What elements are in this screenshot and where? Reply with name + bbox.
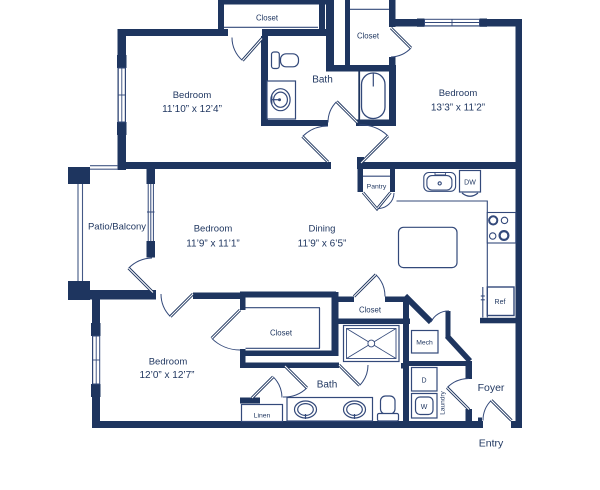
svg-text:Foyer: Foyer <box>478 382 505 394</box>
svg-text:W: W <box>421 404 428 411</box>
svg-text:Closet: Closet <box>359 306 382 315</box>
svg-text:11’9” x 6’5”: 11’9” x 6’5” <box>298 239 347 250</box>
svg-text:Patio/Balcony: Patio/Balcony <box>88 222 146 233</box>
svg-text:Bath: Bath <box>317 380 338 391</box>
svg-text:Ref: Ref <box>495 299 506 306</box>
svg-text:12’0” x 12’7”: 12’0” x 12’7” <box>139 370 194 381</box>
svg-text:Bedroom: Bedroom <box>149 357 188 368</box>
svg-text:Bedroom: Bedroom <box>439 88 478 99</box>
svg-text:Bedroom: Bedroom <box>173 90 212 101</box>
svg-text:11’9” x 11’1”: 11’9” x 11’1” <box>186 239 240 250</box>
svg-text:13’3” x 11’2”: 13’3” x 11’2” <box>431 103 485 114</box>
svg-text:Closet: Closet <box>357 32 380 41</box>
svg-text:Dining: Dining <box>309 224 336 235</box>
svg-text:Closet: Closet <box>270 329 293 338</box>
svg-text:Bath: Bath <box>312 75 333 86</box>
svg-text:Closet: Closet <box>256 14 279 23</box>
svg-text:Entry: Entry <box>479 438 504 450</box>
svg-text:DW: DW <box>464 180 476 187</box>
svg-text:Linen: Linen <box>254 413 271 420</box>
svg-text:Bedroom: Bedroom <box>194 224 233 235</box>
svg-text:11’10” x 12’4”: 11’10” x 12’4” <box>162 104 222 115</box>
svg-text:D: D <box>421 378 426 385</box>
svg-text:Mech: Mech <box>416 340 433 347</box>
svg-text:Pantry: Pantry <box>367 184 387 191</box>
svg-text:Laundry: Laundry <box>440 391 447 415</box>
